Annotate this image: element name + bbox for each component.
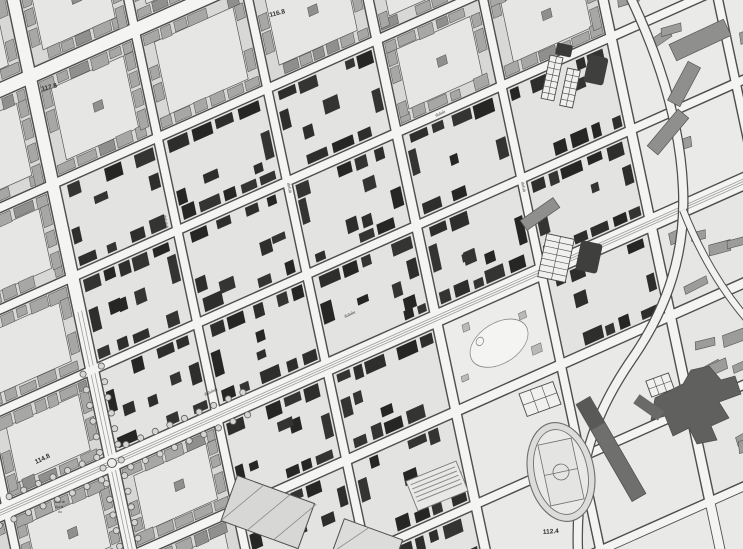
roundabout <box>107 459 116 468</box>
map-viewport: 116.8117.8114.8112.4ılıılıılıılıılıılııl… <box>0 0 743 549</box>
building-label: ılıı <box>58 510 62 514</box>
building-label: ılııl ılı <box>55 505 63 509</box>
spot-height-label: 112.4 <box>543 528 560 536</box>
city-map[interactable]: 116.8117.8114.8112.4ılıılıılıılıılıılııl… <box>0 0 743 549</box>
building-label: ılıılı ılıı <box>55 500 65 504</box>
